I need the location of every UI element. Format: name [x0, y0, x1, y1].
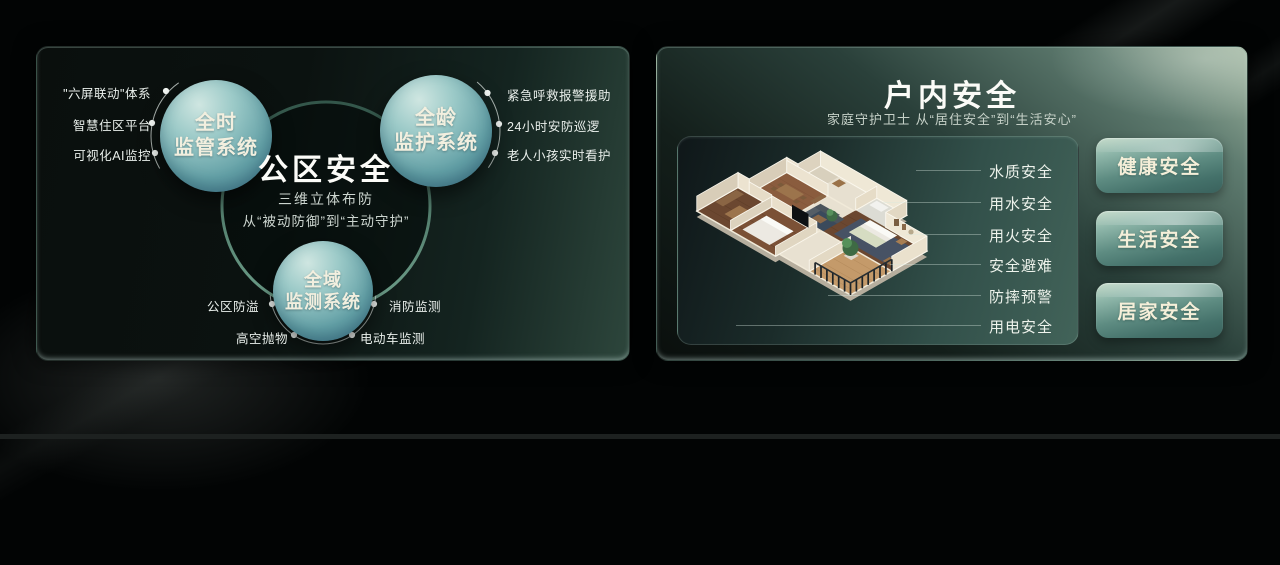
feature-label: 消防监测 [389, 296, 441, 315]
feature-label: 电动车监测 [360, 328, 425, 347]
apartment-floorplan-3d-icon [680, 137, 975, 344]
label-connector [916, 170, 981, 171]
circle-alldomain-monitoring-system: 全域 监测系统 [273, 241, 373, 341]
feature-label: 24小时安防巡逻 [507, 116, 600, 135]
floor-feature-label: 安全避难 [989, 255, 1053, 276]
feature-label: 可视化AI监控 [37, 145, 151, 164]
button-health-safety[interactable]: 健康安全 [1096, 138, 1223, 193]
section-title-public-area: 公区安全 [181, 145, 471, 189]
floor-feature-label: 水质安全 [989, 161, 1053, 182]
circle-label: 全龄 [415, 106, 457, 131]
background-floor-edge [0, 434, 1280, 439]
label-connector [883, 202, 981, 203]
label-connector [736, 325, 981, 326]
indoor-safety-card: 户内安全 家庭守护卫士 从“居住安全”到“生活安心” [656, 46, 1248, 361]
button-home-safety[interactable]: 居家安全 [1096, 283, 1223, 338]
label-connector [906, 234, 981, 235]
circle-label: 全时 [195, 111, 237, 136]
public-area-safety-card: 全时 监管系统 全龄 监护系统 全域 监测系统 "六屏联动"体系 智慧住区平台 … [36, 46, 630, 361]
feature-label: 高空抛物 [186, 328, 288, 347]
circle-label: 全域 [304, 269, 342, 292]
feature-label: 智慧住区平台 [37, 115, 151, 134]
circle-label: 监测系统 [285, 291, 361, 314]
floor-feature-label: 用水安全 [989, 193, 1053, 214]
feature-label: 老人小孩实时看护 [507, 145, 611, 164]
section-subtitle: 三维立体布防 [181, 189, 471, 209]
label-connector [828, 295, 981, 296]
floor-feature-label: 用电安全 [989, 316, 1053, 337]
floor-feature-label: 防摔预警 [989, 286, 1053, 307]
section-subtitle: 家庭守护卫士 从“居住安全”到“生活安心” [752, 109, 1152, 128]
label-connector [890, 264, 981, 265]
feature-label: "六屏联动"体系 [37, 83, 151, 102]
button-life-safety[interactable]: 生活安全 [1096, 211, 1223, 266]
section-subtitle: 从“被动防御”到“主动守护” [151, 210, 501, 230]
feature-label: 紧急呼救报警援助 [507, 85, 611, 104]
floorplan-panel: 水质安全 用水安全 用火安全 安全避难 防摔预警 用电安全 [677, 136, 1079, 345]
feature-label: 公区防溢 [157, 296, 259, 315]
floor-feature-label: 用火安全 [989, 225, 1053, 246]
